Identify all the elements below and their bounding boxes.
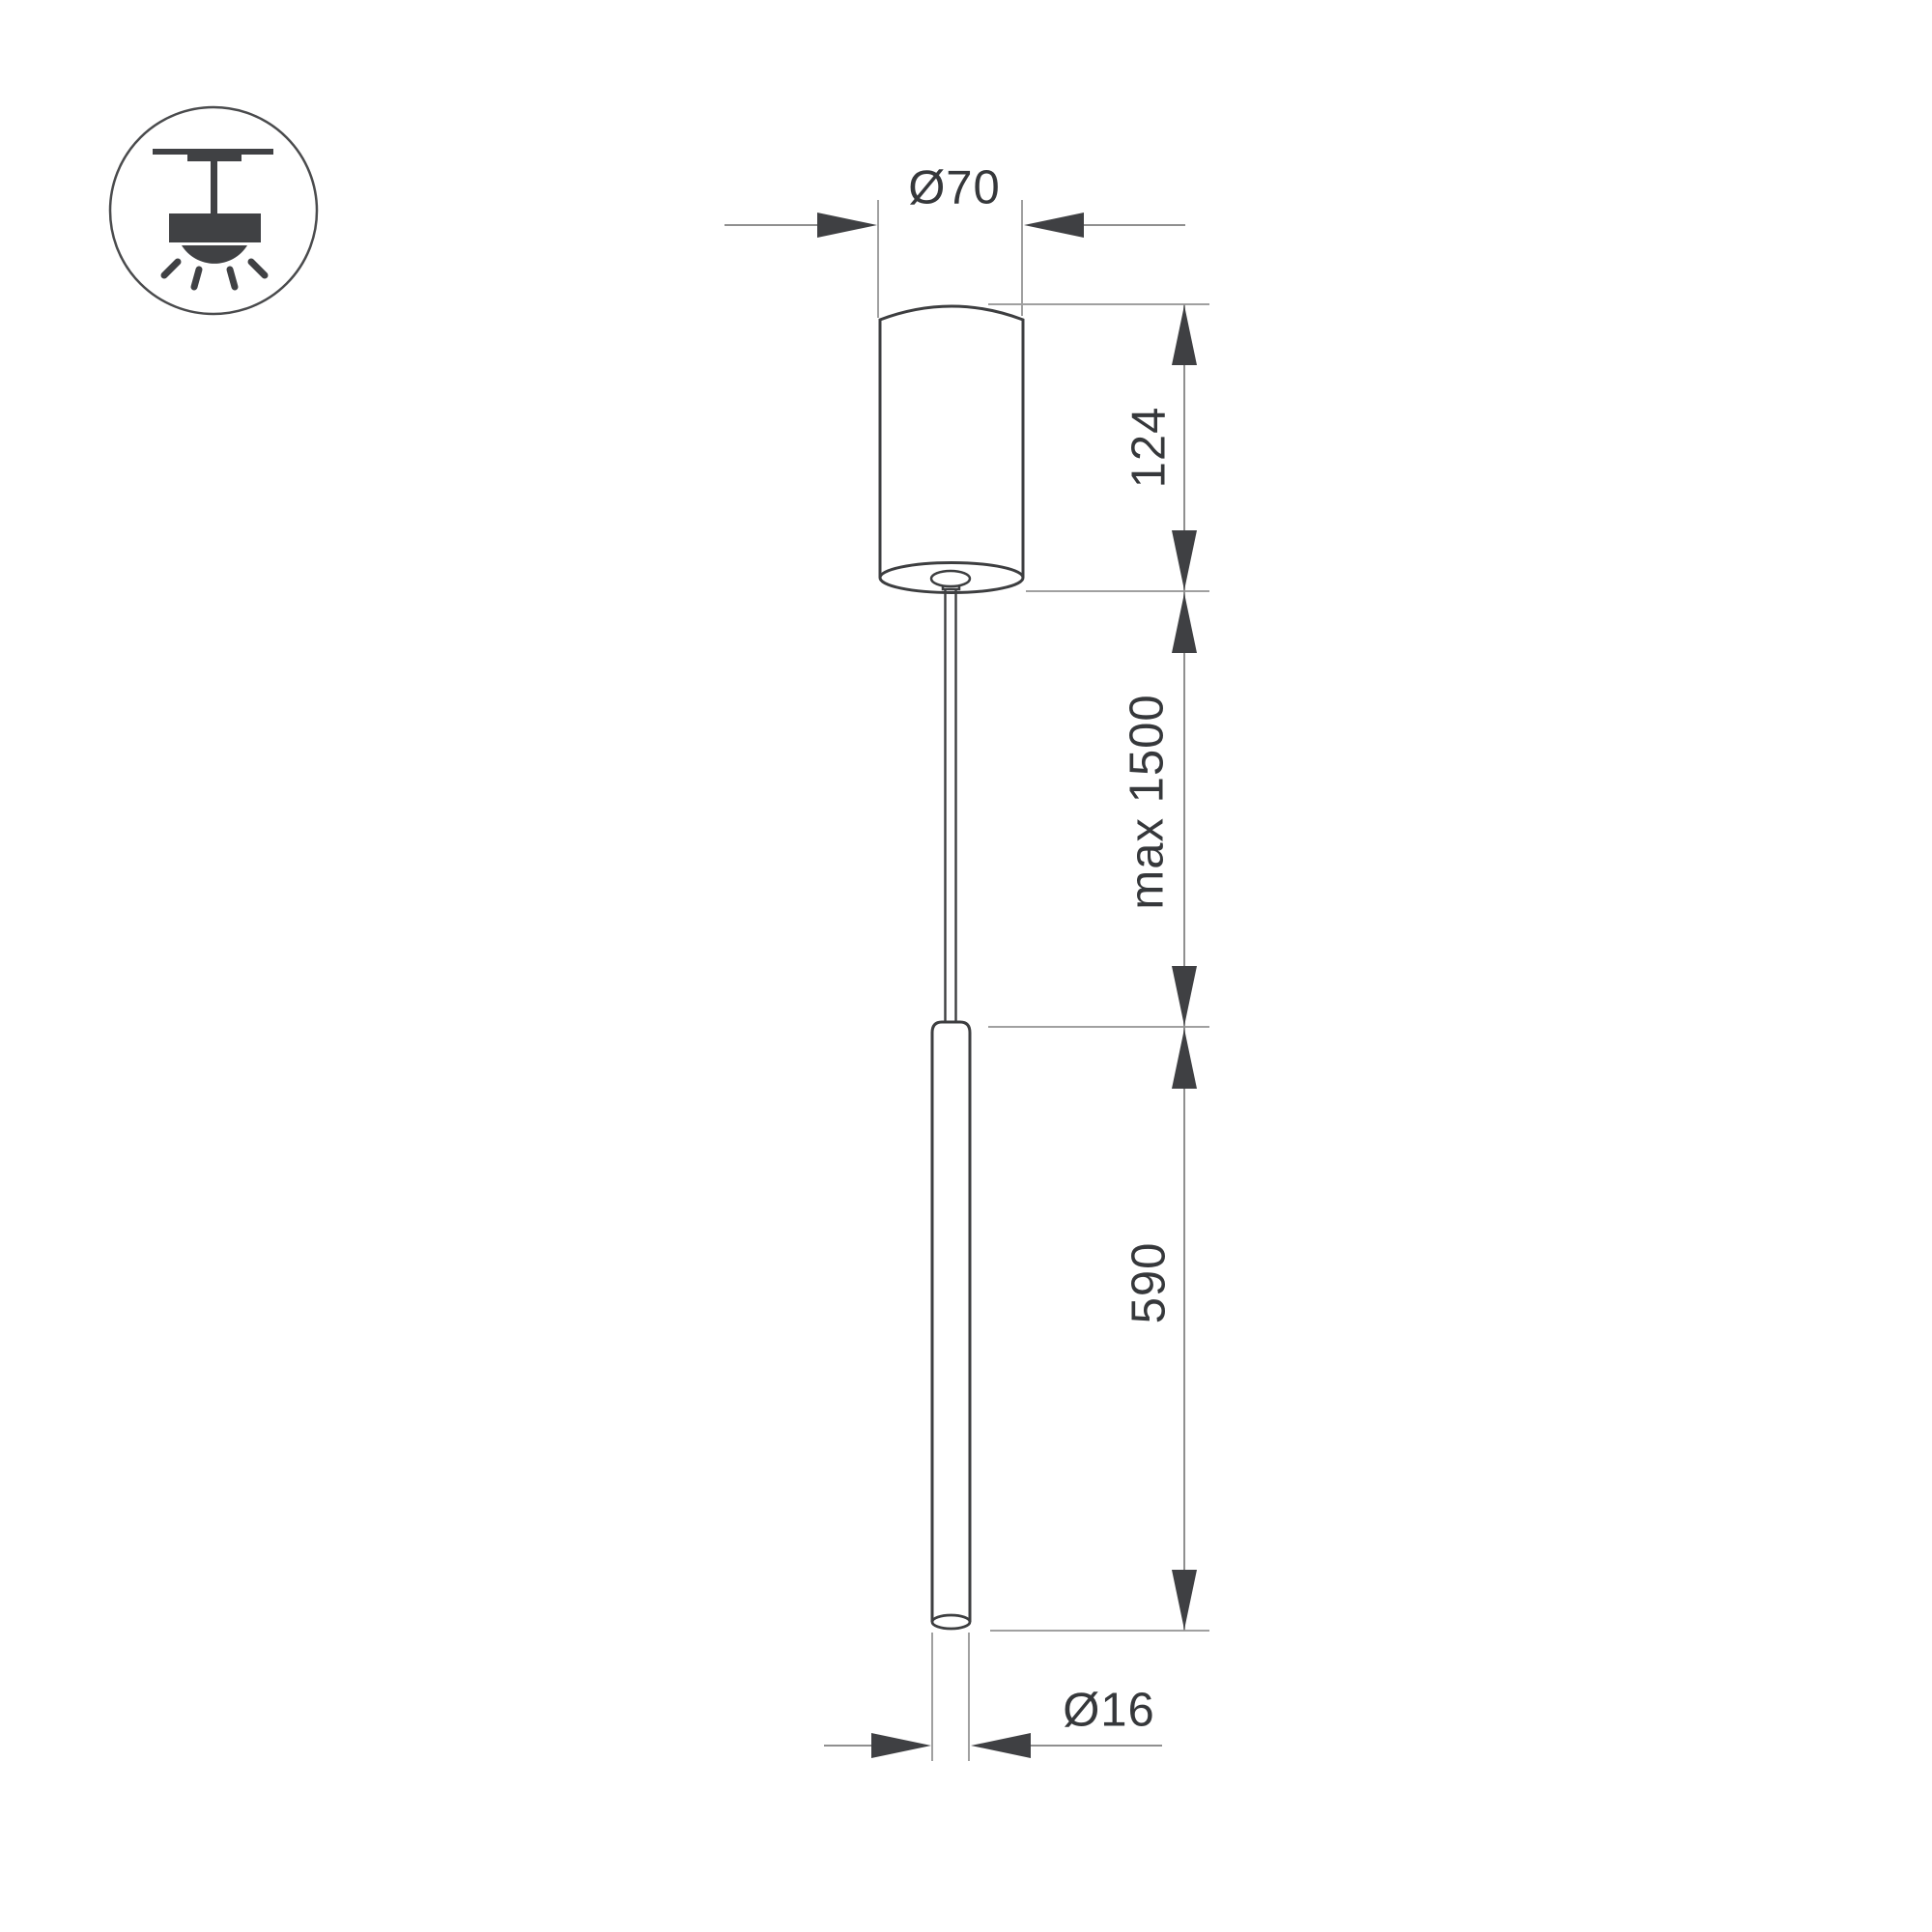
icon-mount-plate bbox=[187, 154, 241, 161]
tube-bottom-rim bbox=[932, 1615, 970, 1629]
dim-label-tube-length: 590 bbox=[1126, 1242, 1174, 1324]
luminaire-drawing bbox=[880, 306, 1023, 1629]
dim-label-tube-diameter: Ø16 bbox=[1063, 1688, 1155, 1735]
arrow-down-icon bbox=[1172, 966, 1197, 1026]
icon-lamp-body bbox=[169, 213, 261, 242]
dim-label-canopy-height: 124 bbox=[1126, 407, 1174, 489]
drawing-page: Ø70 124 max 1500 590 Ø16 bbox=[0, 0, 1932, 1932]
arrow-up-icon bbox=[1172, 305, 1197, 365]
arrow-right-icon bbox=[871, 1733, 931, 1758]
pendant-tube bbox=[932, 1022, 970, 1622]
icon-stem bbox=[211, 161, 217, 215]
arrow-left-icon bbox=[1024, 213, 1084, 238]
arrow-up-icon bbox=[1172, 1029, 1197, 1089]
canopy-body bbox=[880, 306, 1023, 578]
cable-grommet bbox=[931, 571, 970, 586]
arrow-right-icon bbox=[817, 213, 877, 238]
arrow-up-icon bbox=[1172, 593, 1197, 653]
suspension-wire bbox=[946, 589, 956, 1024]
dim-label-canopy-diameter: Ø70 bbox=[908, 165, 1001, 213]
arrow-down-icon bbox=[1172, 530, 1197, 590]
drawing-canvas bbox=[0, 0, 1932, 1932]
ceiling-pendant-light-icon bbox=[110, 107, 317, 314]
dim-label-suspension-max: max 1500 bbox=[1124, 694, 1172, 909]
arrow-left-icon bbox=[971, 1733, 1031, 1758]
arrow-down-icon bbox=[1172, 1570, 1197, 1630]
